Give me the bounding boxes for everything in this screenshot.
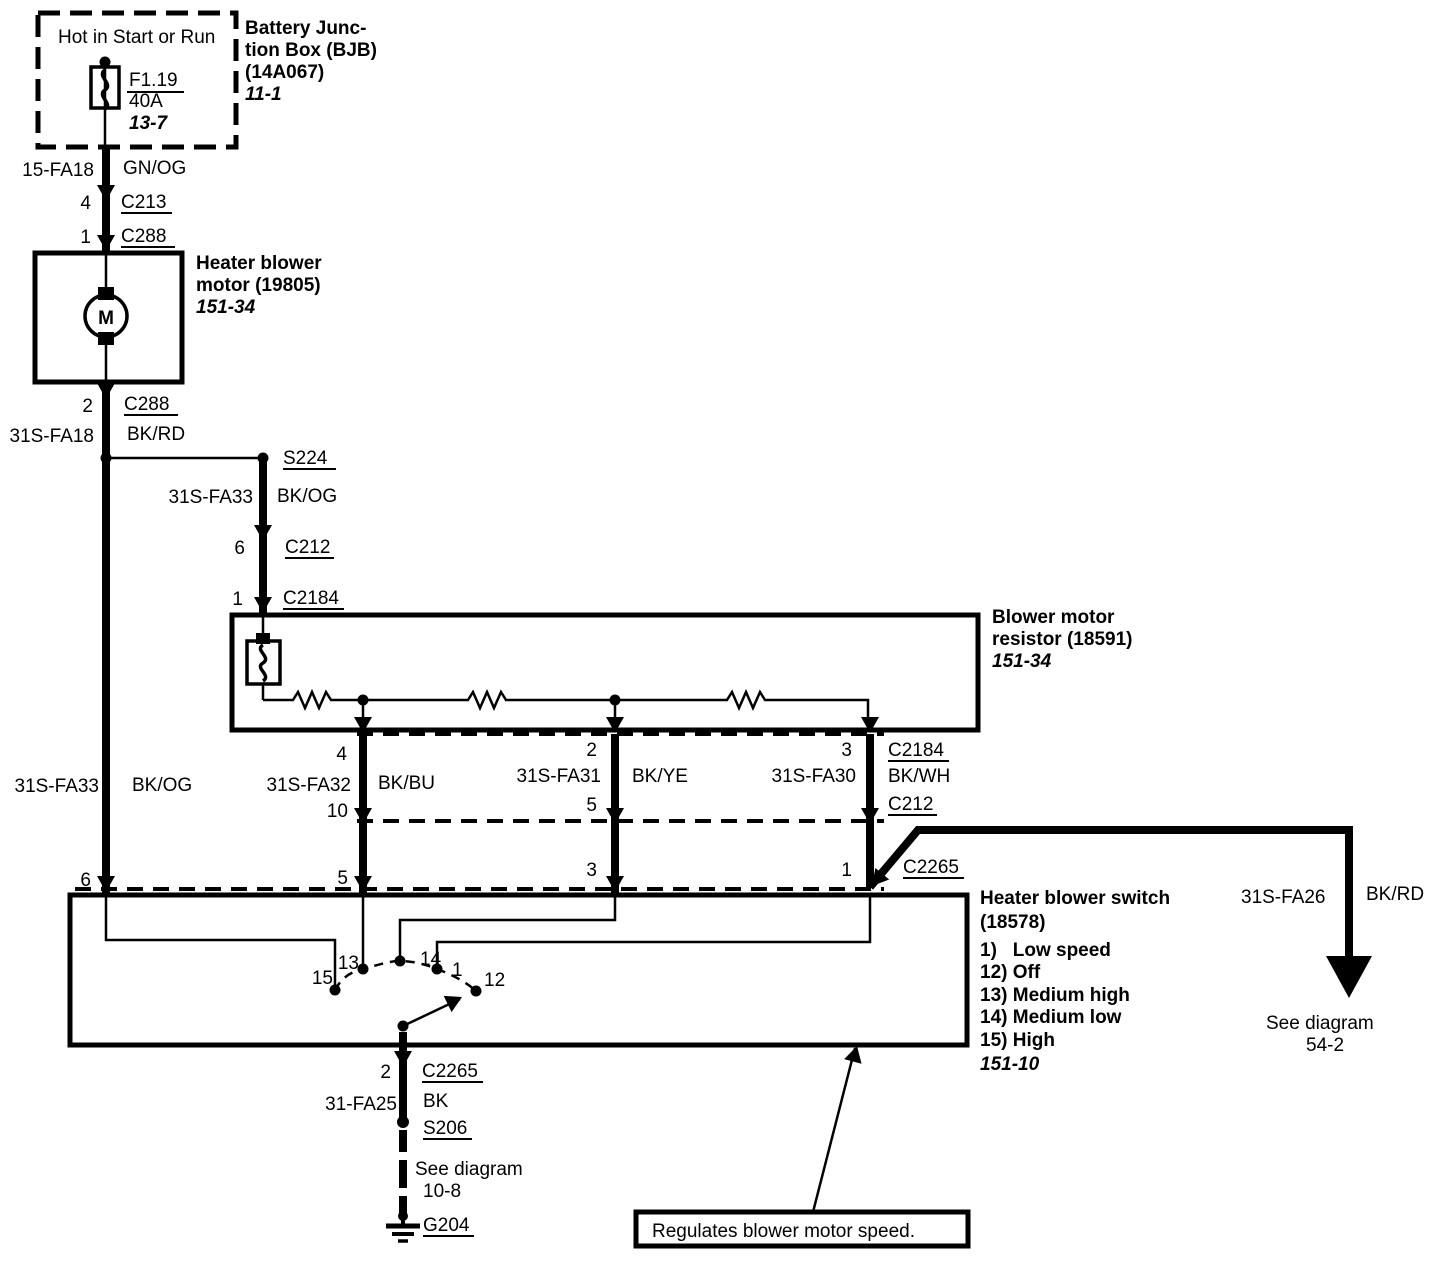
connector-c213-label: C213 bbox=[121, 192, 166, 213]
wire-31s-fa33-branch-id: 31S-FA33 bbox=[169, 487, 254, 508]
thick-wires bbox=[106, 148, 1349, 1214]
pin-c-c2265: 3 bbox=[586, 860, 597, 881]
wire-31s-fa32-id: 31S-FA32 bbox=[267, 775, 352, 796]
wire-31s-fa30-id: 31S-FA30 bbox=[772, 766, 857, 787]
see-diagram-g-line1: See diagram bbox=[415, 1159, 523, 1180]
wire-31-fa25-color: BK bbox=[423, 1091, 449, 1112]
resistor-page-ref: 151-34 bbox=[992, 651, 1052, 672]
wire-31s-fa18-id: 31S-FA18 bbox=[10, 426, 95, 447]
fuse-icon bbox=[91, 57, 119, 110]
motor-name-line1: Heater blower bbox=[196, 253, 322, 274]
thermal-limiter-icon bbox=[247, 633, 280, 684]
pin-1-c2184: 1 bbox=[232, 589, 243, 610]
pin-2-c288: 2 bbox=[82, 396, 93, 417]
connector-c288-label: C288 bbox=[121, 226, 166, 247]
labels: Hot in Start or Run F1.19 40A 13-7 Batte… bbox=[10, 18, 1425, 1242]
splice-s224-label: S224 bbox=[283, 448, 328, 469]
fuse-page-ref: 13-7 bbox=[129, 113, 168, 134]
wire-15-fa18-color: GN/OG bbox=[123, 158, 186, 179]
pin-b-c212: 10 bbox=[327, 801, 348, 822]
wiring-diagram-page: M bbox=[0, 0, 1444, 1264]
pin-d-c2265: 1 bbox=[841, 860, 852, 881]
wire-31-fa25-id: 31-FA25 bbox=[325, 1094, 397, 1115]
motor-name-line2: motor (19805) bbox=[196, 275, 321, 296]
wire-15-fa18-id: 15-FA18 bbox=[22, 160, 94, 181]
ground-icon bbox=[386, 1208, 420, 1241]
connector-c2265-bottom-label: C2265 bbox=[422, 1061, 478, 1082]
symbols: M bbox=[85, 57, 1372, 1242]
pin-b-c2265: 5 bbox=[337, 868, 348, 889]
connector-c288-label-2: C288 bbox=[124, 394, 169, 415]
offpage-arrow-a-icon: A bbox=[1326, 956, 1372, 998]
hot-in-start-label: Hot in Start or Run bbox=[58, 27, 215, 48]
pin-2-c2265: 2 bbox=[380, 1062, 391, 1083]
heater-blower-switch-box bbox=[70, 895, 967, 1045]
pin-d-c2184: 3 bbox=[841, 740, 852, 761]
motor-symbol-letter: M bbox=[98, 308, 114, 329]
motor-page-ref: 151-34 bbox=[196, 297, 256, 318]
pin-1-c288: 1 bbox=[80, 227, 91, 248]
bjb-page-ref: 11-1 bbox=[245, 84, 282, 105]
resistor-name-line2: resistor (18591) bbox=[992, 629, 1132, 650]
arrow-a-letter: A bbox=[1342, 966, 1356, 987]
component-boxes bbox=[35, 13, 978, 1246]
fuse-id-label: F1.19 bbox=[129, 70, 178, 91]
contact-15-label: 15 bbox=[312, 968, 333, 989]
connector-c2265-label: C2265 bbox=[903, 857, 959, 878]
wire-31s-fa33-id: 31S-FA33 bbox=[15, 776, 100, 797]
wire-31s-fa18-color: BK/RD bbox=[127, 424, 185, 445]
pin-c-c2184: 2 bbox=[586, 740, 597, 761]
blower-motor-resistor-box bbox=[232, 615, 978, 730]
contact-12-label: 12 bbox=[484, 970, 505, 991]
switch-page-ref: 151-10 bbox=[980, 1054, 1040, 1075]
inline-connectors bbox=[75, 734, 884, 889]
wiring-diagram: M bbox=[0, 0, 1444, 1264]
switch-item-medlow: 14) Medium low bbox=[980, 1007, 1122, 1028]
wire-31s-fa31-id: 31S-FA31 bbox=[517, 766, 602, 787]
wire-31s-fa31-color: BK/YE bbox=[632, 766, 688, 787]
ground-g204-label: G204 bbox=[423, 1215, 470, 1236]
connector-c212-label: C212 bbox=[285, 537, 330, 558]
bjb-part-number: (14A067) bbox=[245, 62, 324, 83]
pin-b-c2184: 4 bbox=[336, 744, 347, 765]
splice-s206-label: S206 bbox=[423, 1118, 467, 1139]
wire-31s-fa32-color: BK/BU bbox=[378, 773, 435, 794]
contact-1-label: 1 bbox=[452, 960, 463, 981]
wire-31s-fa30-color: BK/WH bbox=[888, 766, 950, 787]
see-diagram-a-line1: See diagram bbox=[1266, 1013, 1374, 1034]
switch-name-line2: (18578) bbox=[980, 912, 1046, 933]
fuse-rating-label: 40A bbox=[129, 91, 163, 112]
thin-wires bbox=[105, 62, 870, 1212]
pin-6-c212: 6 bbox=[234, 538, 245, 559]
wire-31s-fa26-id: 31S-FA26 bbox=[1241, 887, 1326, 908]
connector-c2184-label: C2184 bbox=[283, 588, 339, 609]
switch-item-low: 1) Low speed bbox=[980, 940, 1111, 961]
bjb-name-line2: tion Box (BJB) bbox=[245, 40, 377, 61]
wire-31s-fa33-branch-color: BK/OG bbox=[277, 486, 337, 507]
switch-item-off: 12) Off bbox=[980, 962, 1041, 983]
bjb-name-line1: Battery Junc- bbox=[245, 18, 366, 39]
wiper-arrow-icon bbox=[444, 989, 466, 1012]
see-diagram-a-line2: 54-2 bbox=[1306, 1035, 1344, 1056]
switch-item-high: 15) High bbox=[980, 1030, 1055, 1051]
switch-name-line1: Heater blower switch bbox=[980, 888, 1170, 909]
see-diagram-g-line2: 10-8 bbox=[423, 1181, 461, 1202]
connector-c2184-right-label: C2184 bbox=[888, 740, 944, 761]
wire-31s-fa33-color: BK/OG bbox=[132, 775, 192, 796]
motor-icon: M bbox=[85, 287, 127, 345]
contact-13-label: 13 bbox=[338, 953, 359, 974]
note-arrow bbox=[813, 1048, 855, 1212]
connector-c212-right-label: C212 bbox=[888, 794, 933, 815]
pin-c-c212: 5 bbox=[586, 795, 597, 816]
resistor-chain bbox=[263, 692, 868, 726]
note-text: Regulates blower motor speed. bbox=[652, 1221, 915, 1242]
switch-item-medhigh: 13) Medium high bbox=[980, 985, 1130, 1006]
wire-31s-fa26-color: BK/RD bbox=[1366, 884, 1424, 905]
pin-4-c213: 4 bbox=[80, 193, 91, 214]
pin-a-c2265: 6 bbox=[80, 870, 91, 891]
contact-14-label: 14 bbox=[420, 949, 442, 970]
resistor-name-line1: Blower motor bbox=[992, 607, 1115, 628]
